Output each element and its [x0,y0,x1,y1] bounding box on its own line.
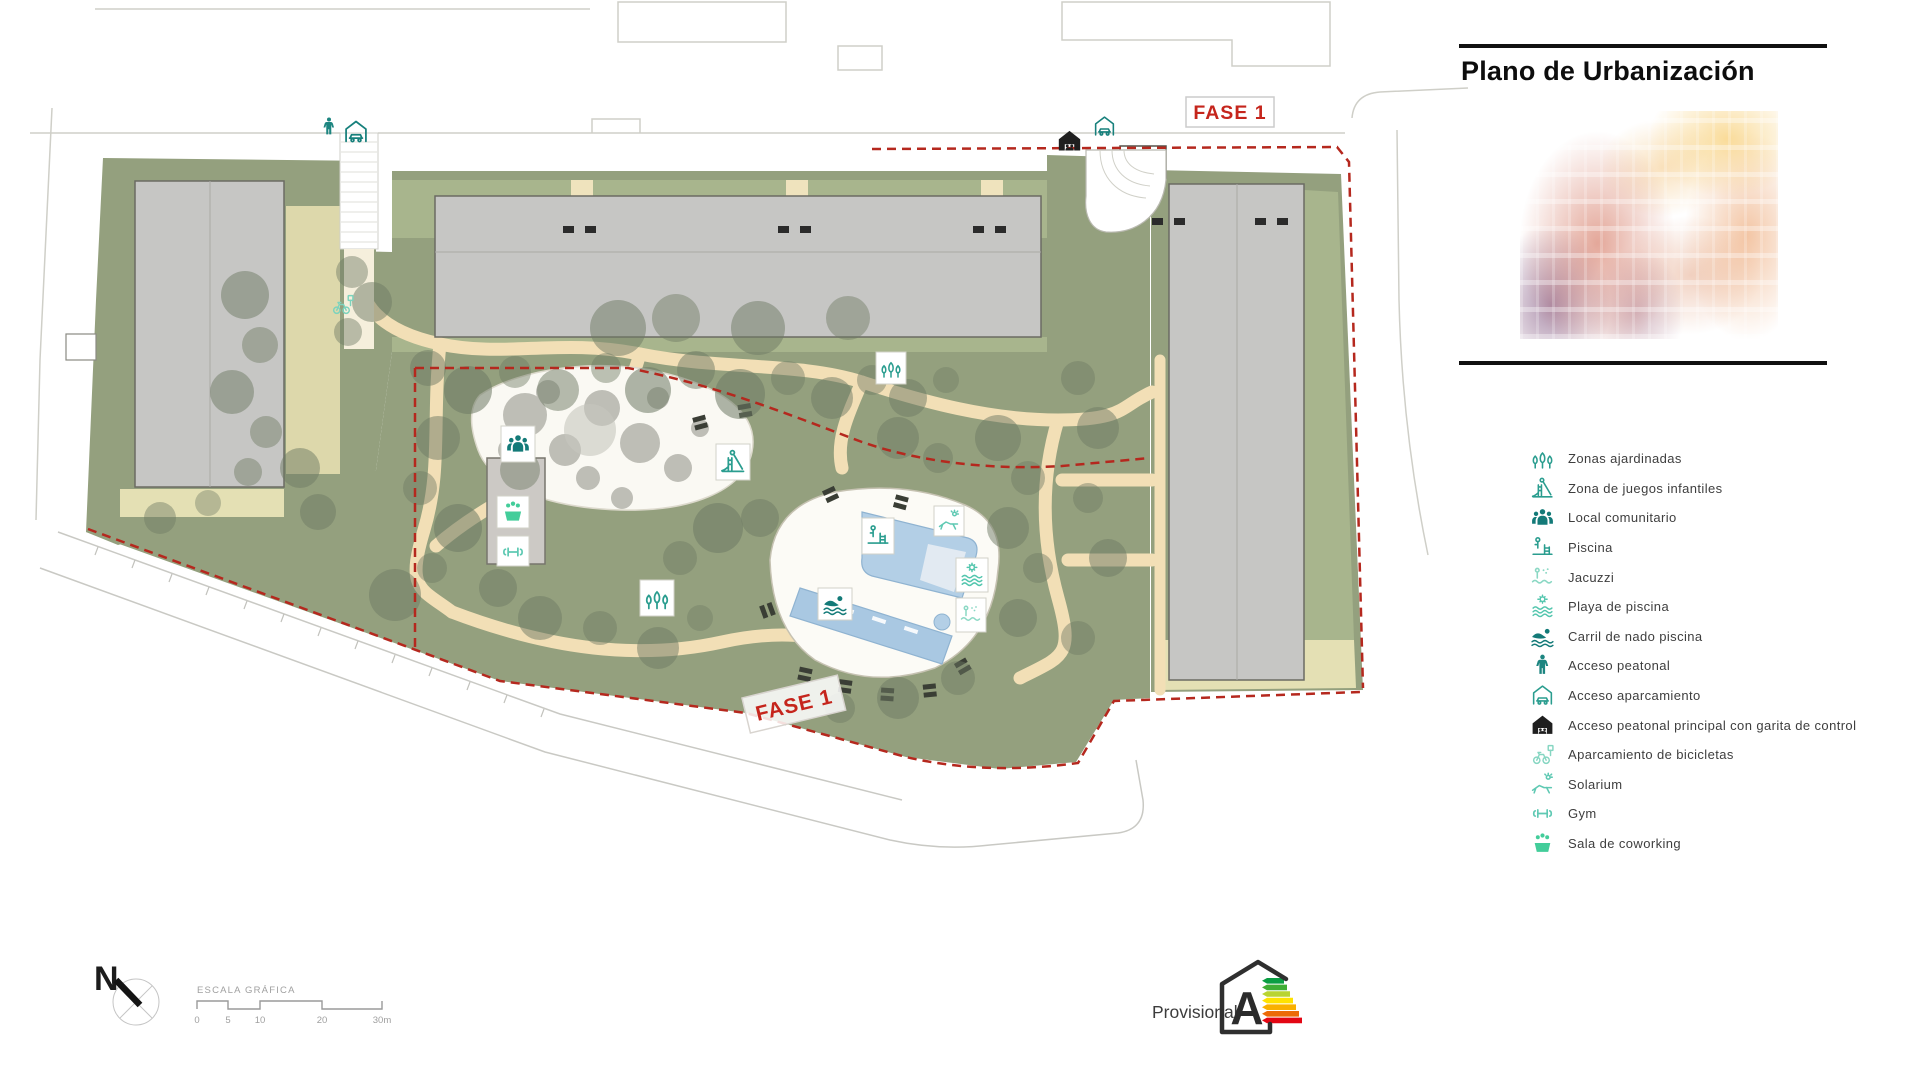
map-pool-beach-icon [956,558,988,592]
map-playground-icon [716,444,750,480]
fase-label-top: FASE 1 [1186,97,1274,127]
legend-item-label: Local comunitario [1568,510,1677,525]
parking-access-icon [346,122,366,142]
legend-item-label: Acceso peatonal principal con garita de … [1568,718,1856,733]
svg-text:20: 20 [317,1015,328,1026]
pedestrian-access-icon [1530,653,1555,678]
coworking-icon [1530,831,1555,856]
divider-top [1459,44,1827,48]
legend-item-label: Jacuzzi [1568,570,1614,585]
solarium-icon [1530,772,1555,797]
page-title: Plano de Urbanización [1461,56,1755,87]
legend-list: Zonas ajardinadas Zona de juegos infanti… [1530,444,1856,858]
map-swim-lane-icon [818,588,852,620]
map-jacuzzi-icon [956,598,986,632]
energy-bars [1262,978,1302,1023]
map-pool-icon [862,518,894,554]
legend-item: Zonas ajardinadas [1530,444,1856,474]
map-trees-icon-2 [876,352,906,384]
energy-badge: Provisional A [1152,962,1302,1034]
legend-item: Acceso peatonal [1530,651,1856,681]
parking-access-icon [1530,683,1555,708]
legend-item: Carril de nado piscina [1530,622,1856,652]
jacuzzi-icon [1530,565,1555,590]
hero-watercolor-image [1520,111,1778,339]
energy-rating-letter: A [1230,982,1263,1034]
map-gym-icon [497,536,529,566]
svg-text:ESCALA GRÁFICA: ESCALA GRÁFICA [197,985,296,996]
jacuzzi-pool [934,614,950,630]
swim-lane-icon [1530,624,1555,649]
svg-text:10: 10 [255,1015,266,1026]
legend-item: Aparcamiento de bicicletas [1530,740,1856,770]
legend-item: Sala de coworking [1530,829,1856,859]
north-arrow: N [94,960,159,1025]
legend-item-label: Solarium [1568,777,1623,792]
legend-item: Solarium [1530,770,1856,800]
svg-text:5: 5 [225,1015,230,1026]
legend-item-label: Piscina [1568,540,1613,555]
gym-icon [1530,801,1555,826]
legend-item-label: Zona de juegos infantiles [1568,481,1723,496]
scale-bar: ESCALA GRÁFICA 0 5 10 20 30m [194,985,391,1026]
divider-bottom [1459,361,1827,365]
svg-text:FASE 1: FASE 1 [1193,102,1266,124]
map-trees-icon [640,580,674,616]
pool-icon [1530,535,1555,560]
legend-item-label: Zonas ajardinadas [1568,451,1682,466]
trees-icon [1530,446,1555,471]
svg-text:30m: 30m [373,1015,392,1026]
legend-item: Jacuzzi [1530,562,1856,592]
legend-item: Zona de juegos infantiles [1530,474,1856,504]
legend-item-label: Gym [1568,806,1597,821]
map-coworking-icon [497,496,529,528]
legend-item-label: Playa de piscina [1568,599,1669,614]
community-icon [1530,505,1555,530]
parking-access-icon-2 [1096,117,1114,135]
playground-icon [1530,476,1555,501]
legend-item: Playa de piscina [1530,592,1856,622]
info-panel: Plano de Urbanización Zonas ajardinadas … [1455,0,1875,1080]
legend-item: Acceso aparcamiento [1530,681,1856,711]
main-access-icon [1530,713,1555,738]
legend-item-label: Aparcamiento de bicicletas [1568,747,1734,762]
legend-item-label: Carril de nado piscina [1568,629,1703,644]
svg-text:0: 0 [194,1015,199,1026]
legend-item-label: Acceso aparcamiento [1568,688,1701,703]
energy-status-label: Provisional [1152,1002,1238,1022]
map-solarium-icon [934,506,964,536]
map-community-icon [501,426,535,462]
pool-beach-icon [1530,594,1555,619]
legend-item: Gym [1530,799,1856,829]
bike-parking-icon [1530,742,1555,767]
pedestrian-access-icon [324,117,335,134]
legend-item-label: Sala de coworking [1568,836,1681,851]
legend-item: Local comunitario [1530,503,1856,533]
plano-urbanizacion-sheet: FASE 1 FASE 1 N ESCALA GRÁFICA 0 5 10 20… [0,0,1920,1080]
legend-item-label: Acceso peatonal [1568,658,1670,673]
legend-item: Acceso peatonal principal con garita de … [1530,710,1856,740]
legend-item: Piscina [1530,533,1856,563]
